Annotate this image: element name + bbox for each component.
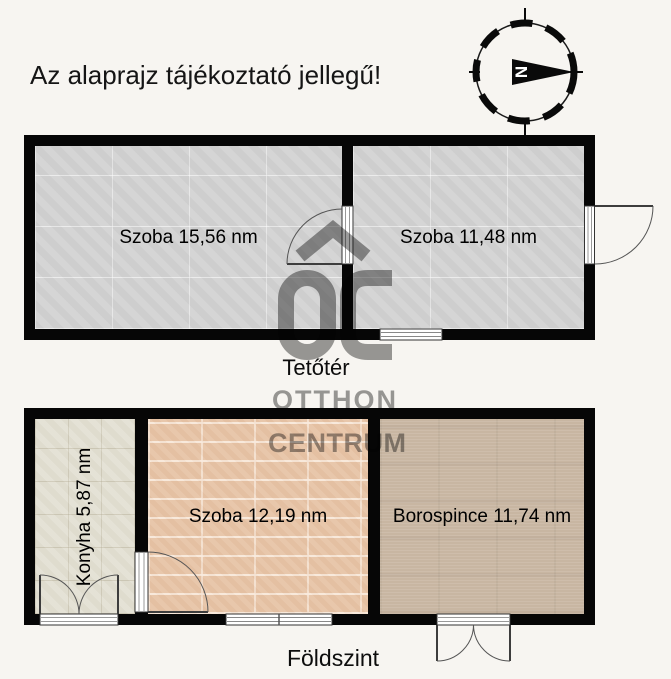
room-borospince: Borospince 11,74 nm (380, 419, 584, 614)
watermark-otthon-centrum: OTTHON CENTRUM (268, 220, 402, 457)
logo-roof-icon (300, 229, 366, 256)
disclaimer-title: Az alaprajz tájékoztató jellegű! (30, 60, 381, 91)
logo-letter-c (348, 278, 392, 352)
room-label: Borospince 11,74 nm (393, 506, 571, 528)
watermark-line-1: OTTHON (268, 387, 402, 414)
ground-floor-label: Földszint (263, 645, 403, 672)
room-label: Szoba 15,56 nm (119, 227, 257, 249)
compass-icon: N (462, 6, 590, 136)
watermark-line-2: CENTRUM (268, 430, 402, 457)
room-label: Szoba 12,19 nm (189, 506, 327, 528)
room-label: Konyha 5,87 nm (74, 447, 96, 585)
floorplan-canvas: Az alaprajz tájékoztató jellegű! N Szoba… (0, 0, 671, 679)
logo-letter-o (286, 278, 328, 352)
oc-logo-icon (268, 220, 402, 368)
room-konyha: Konyha 5,87 nm (35, 419, 135, 614)
room-label: Szoba 11,48 nm (400, 227, 537, 249)
north-label: N (512, 66, 531, 78)
